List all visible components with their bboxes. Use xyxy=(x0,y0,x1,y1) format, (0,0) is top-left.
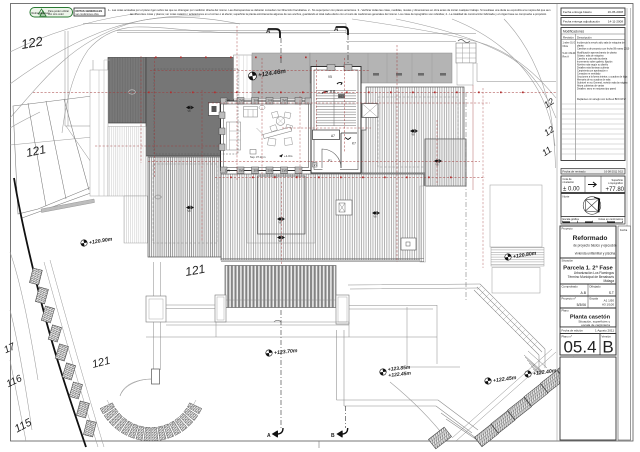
svg-text:A3 1/100: A3 1/100 xyxy=(602,303,614,307)
svg-text:ver condiciones obra: ver condiciones obra xyxy=(76,13,100,16)
svg-text:Replanteo con arreglo con fech: Replanteo con arreglo con fecha el BFN 0… xyxy=(577,98,627,101)
svg-text:Fecha: Fecha xyxy=(620,228,628,232)
svg-text:vivienda unifamiliar y piscina: vivienda unifamiliar y piscina xyxy=(575,252,616,256)
svg-text:3V6: 3V6 xyxy=(254,169,259,173)
svg-text:P1: P1 xyxy=(328,159,332,163)
svg-text:3V6: 3V6 xyxy=(254,99,259,103)
svg-text:B: B xyxy=(331,433,335,439)
svg-text:o topográfico: o topográfico xyxy=(608,181,624,185)
svg-text:Fecha entrega básico: Fecha entrega básico xyxy=(563,10,592,14)
svg-text:Descripción: Descripción xyxy=(577,35,592,39)
svg-text:Situación: Situación xyxy=(562,259,574,263)
svg-text:A: A xyxy=(267,433,271,439)
svg-text:A7: A7 xyxy=(331,134,335,138)
svg-text:± 0.00: ± 0.00 xyxy=(563,187,580,193)
svg-text:5V6: 5V6 xyxy=(268,169,273,173)
svg-text:A.B: A.B xyxy=(581,291,587,295)
svg-text:Proyecto: Proyecto xyxy=(562,227,573,231)
svg-text:B12: B12 xyxy=(339,94,345,98)
svg-text:Escala: Escala xyxy=(590,297,599,301)
svg-text:A: A xyxy=(266,29,271,35)
svg-text:1V6: 1V6 xyxy=(282,169,287,173)
svg-text:Málaga: Málaga xyxy=(604,279,615,283)
svg-text:+1.0m: +1.0m xyxy=(284,154,293,158)
svg-text:14-11-2008: 14-11-2008 xyxy=(608,20,623,24)
svg-text:2V6: 2V6 xyxy=(225,99,230,103)
svg-text:Norte: Norte xyxy=(563,195,570,199)
svg-text:Cambios a de proyecto con fech: Cambios a de proyecto con fecha 08 marzo… xyxy=(577,48,630,51)
svg-text:Fecha entrega adjudicación: Fecha entrega adjudicación xyxy=(563,20,600,24)
svg-text:05.4: 05.4 xyxy=(563,338,596,357)
svg-text:Cotas en centímetros: Cotas en centímetros xyxy=(598,217,623,221)
svg-text:Revisión: Revisión xyxy=(563,35,574,39)
svg-text:Modificaciones: Modificaciones xyxy=(563,30,584,34)
svg-text:B11: B11 xyxy=(330,90,336,94)
svg-text:16-05-2008: 16-05-2008 xyxy=(608,10,624,14)
svg-text:Reformado: Reformado xyxy=(573,235,608,242)
svg-text:+77.80: +77.80 xyxy=(605,187,624,193)
svg-text:5/3/06: 5/3/06 xyxy=(577,303,587,307)
svg-text:1 Agosto 2011: 1 Agosto 2011 xyxy=(595,329,614,333)
svg-text:Escala gráfica: Escala gráfica xyxy=(563,217,580,221)
svg-text:de proyecto básico y ejecución: de proyecto básico y ejecución xyxy=(573,244,617,248)
svg-text:S.T: S.T xyxy=(609,291,614,295)
svg-text:con otro color: con otro color xyxy=(48,12,64,16)
svg-text:2V6: 2V6 xyxy=(239,99,244,103)
svg-text:Fecha de revisado: Fecha de revisado xyxy=(563,170,586,174)
svg-text:Plano: Plano xyxy=(562,309,570,313)
svg-text:Incidencia la envolv adic sala: Incidencia la envolv adic sala de máquin… xyxy=(577,42,625,45)
svg-text:5V6: 5V6 xyxy=(239,169,244,173)
svg-text:Rev A: Rev A xyxy=(563,56,570,59)
svg-text:B: B xyxy=(602,338,613,357)
svg-text:Fecha de edición: Fecha de edición xyxy=(562,329,584,333)
svg-text:1.- Las cotas acotadas por el: 1.- Las cotas acotadas por el plano rige… xyxy=(108,8,551,12)
svg-text:3V6: 3V6 xyxy=(282,99,287,103)
svg-text:K7: K7 xyxy=(352,142,356,146)
svg-text:Comprobado: Comprobado xyxy=(562,285,579,289)
svg-text:las diferentes cotas y planos;: las diferentes cotas y planos; ver cotas… xyxy=(130,12,547,16)
svg-text:16-08-2011 9:15: 16-08-2011 9:15 xyxy=(604,170,623,174)
svg-text:1V6: 1V6 xyxy=(225,169,230,173)
svg-text:Sup. 37.10 m: Sup. 37.10 m xyxy=(250,155,265,159)
svg-text:Obra: Obra xyxy=(563,45,569,48)
svg-text:nivelación: nivelación xyxy=(563,180,575,184)
svg-text:Detalles: aseo en mejoras tipo: Detalles: aseo en mejoras tipo pared xyxy=(577,88,617,91)
svg-text:Proyecto nº: Proyecto nº xyxy=(562,297,576,301)
svg-text:Dibujado: Dibujado xyxy=(590,285,601,289)
svg-text:2V6: 2V6 xyxy=(268,99,273,103)
svg-text:V5: V5 xyxy=(328,75,332,79)
svg-text:A: A xyxy=(334,27,339,33)
